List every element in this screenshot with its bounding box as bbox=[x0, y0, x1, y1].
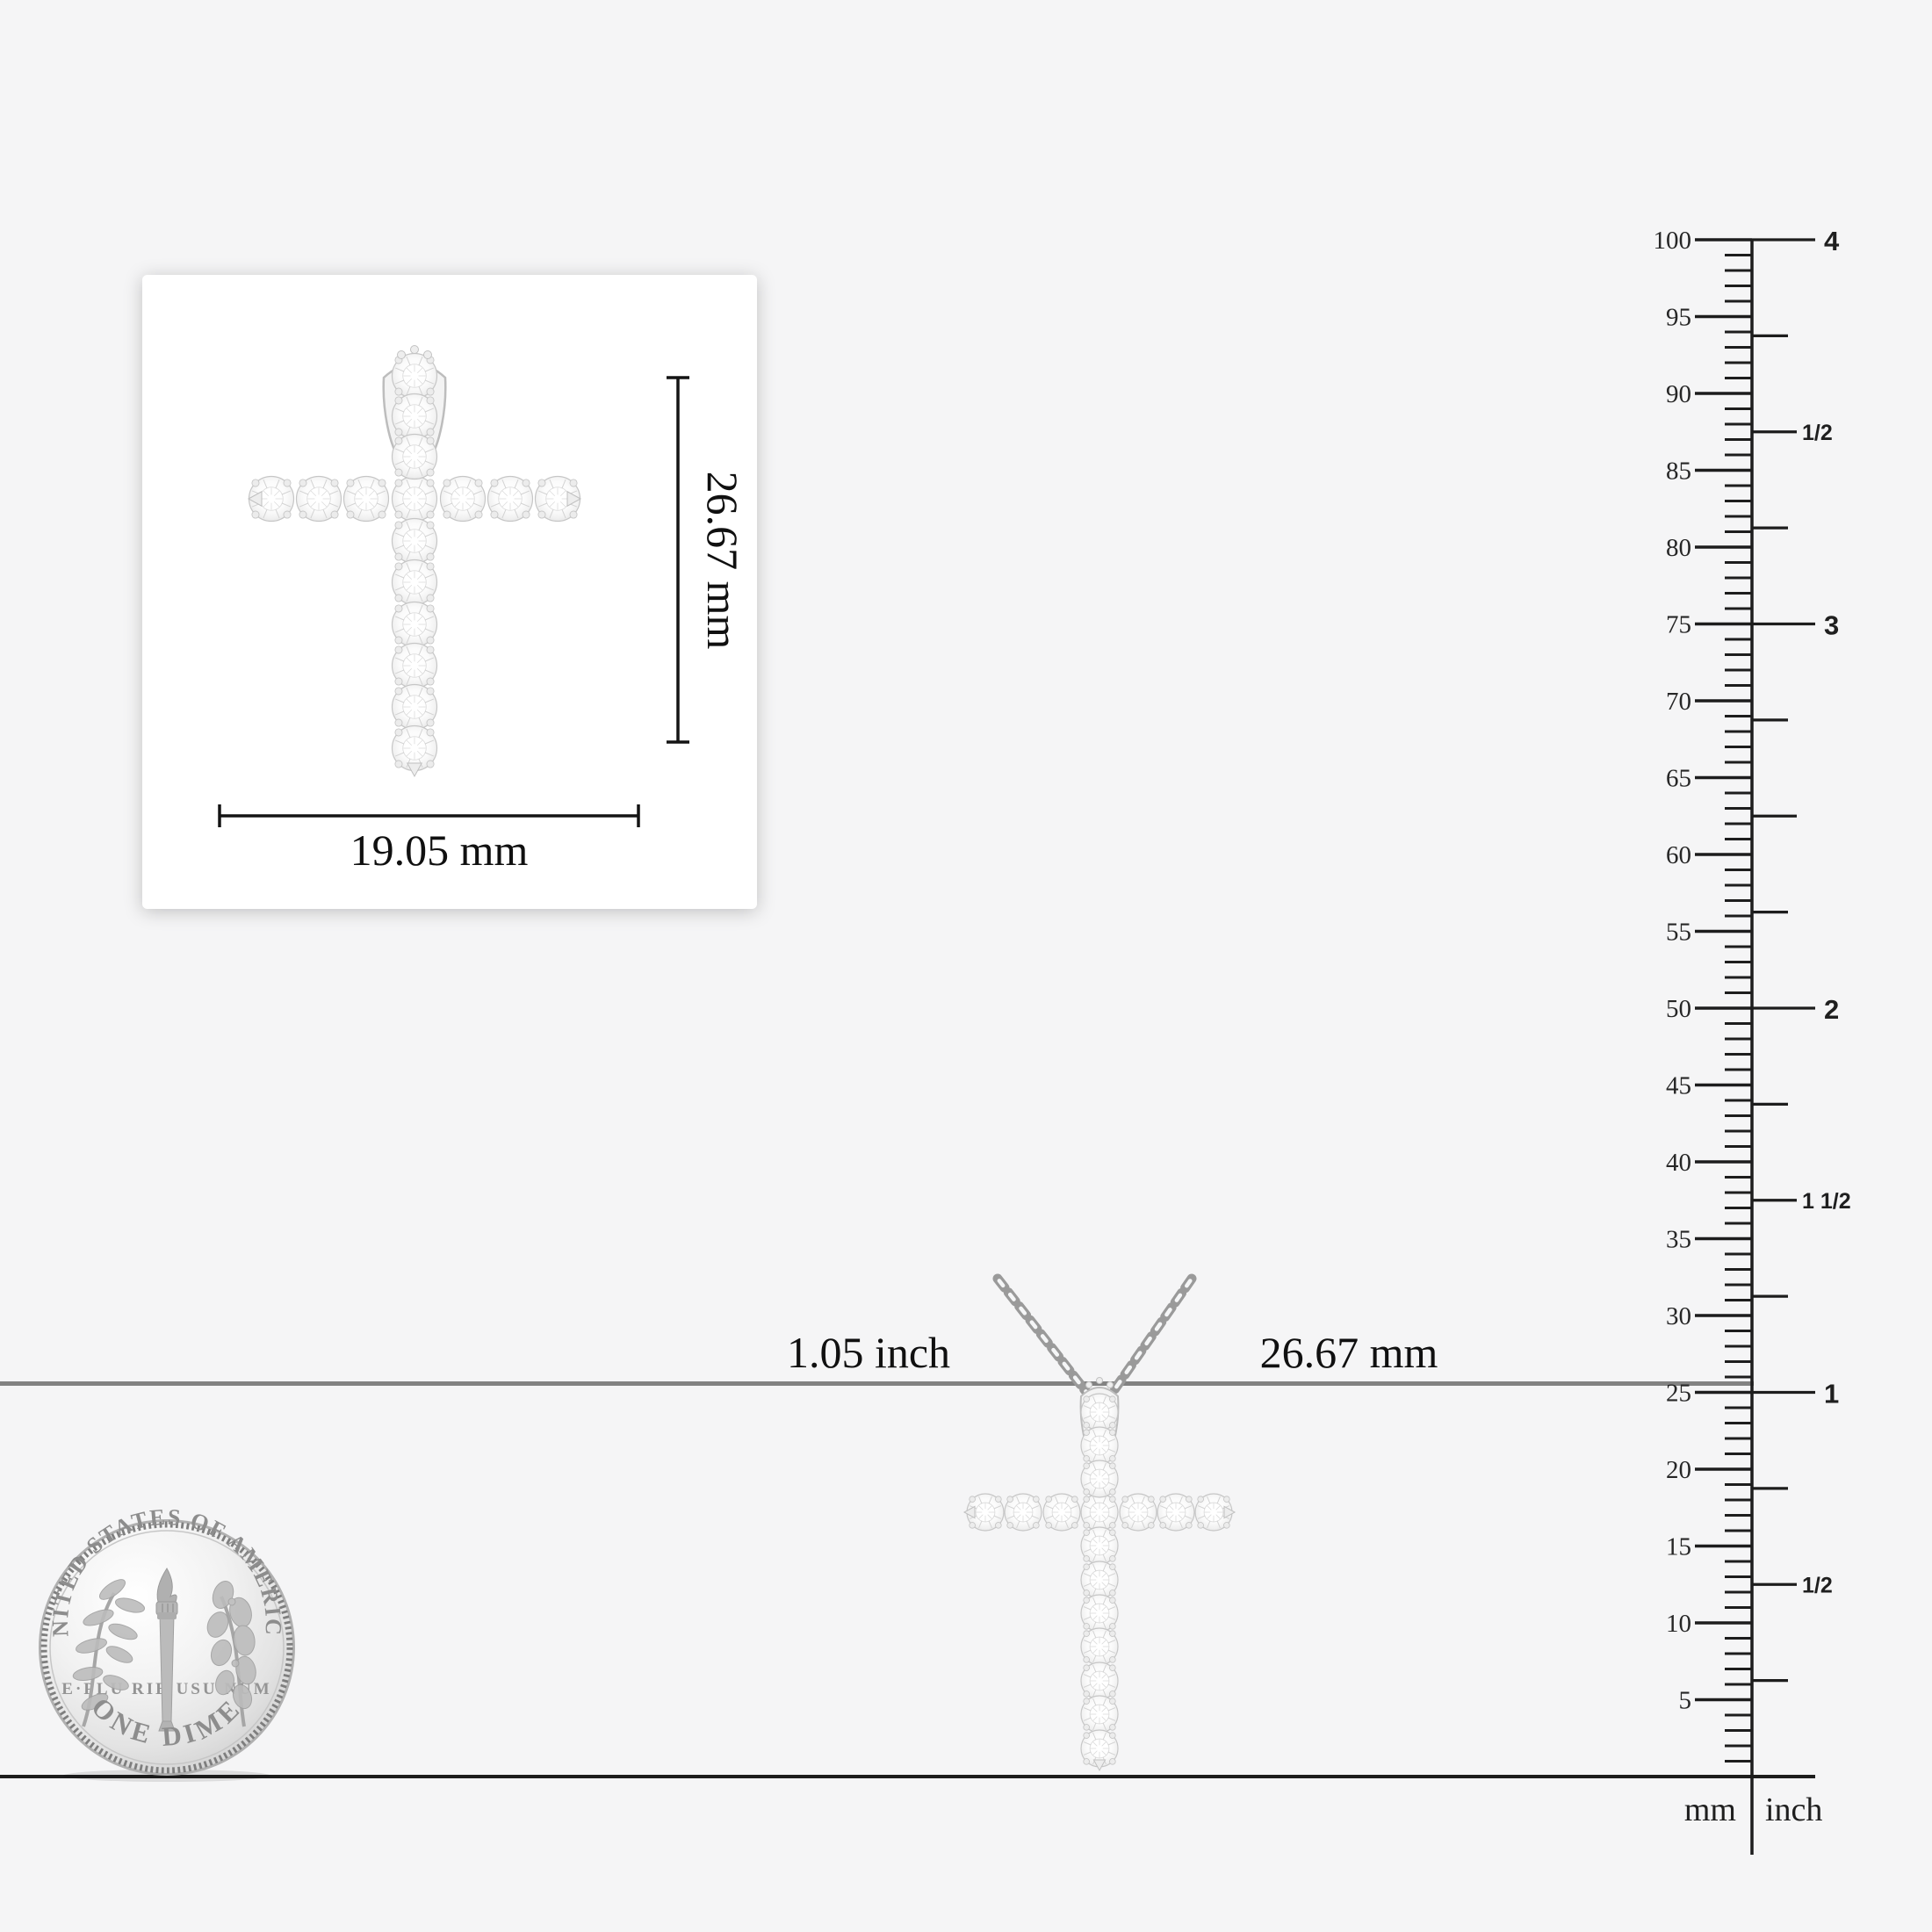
prong-dot bbox=[995, 1522, 1001, 1528]
prong-dot bbox=[1148, 1522, 1154, 1528]
card-height-label: 26.67 mm bbox=[698, 472, 747, 650]
prong-dot bbox=[1122, 1496, 1128, 1503]
prong-dot bbox=[1109, 1656, 1115, 1662]
prong-dot bbox=[427, 595, 434, 602]
prong-dot bbox=[395, 646, 402, 653]
prong-dot bbox=[331, 511, 338, 518]
prong-dot bbox=[523, 479, 530, 487]
prong-dot bbox=[443, 511, 451, 518]
prong-dot bbox=[1084, 1631, 1090, 1637]
prong-dot bbox=[538, 479, 545, 487]
prong-dot bbox=[1109, 1665, 1115, 1671]
ruler-inch-label: 4 bbox=[1824, 226, 1840, 256]
prong-dot bbox=[427, 688, 434, 695]
prong-dot bbox=[347, 479, 354, 487]
prong-dot bbox=[1084, 1463, 1090, 1469]
prong-dot bbox=[1186, 1522, 1192, 1528]
diamond-stone bbox=[393, 685, 437, 730]
prong-dot bbox=[427, 729, 434, 736]
prong-dot bbox=[1223, 1496, 1229, 1503]
ruler-mm-label: 50 bbox=[1666, 995, 1691, 1023]
diamond-stone bbox=[1081, 1628, 1118, 1665]
ruler-mm-label: 75 bbox=[1666, 611, 1691, 639]
prong-dot bbox=[1046, 1496, 1052, 1503]
prong-dot bbox=[1109, 1698, 1115, 1705]
diamond-stone bbox=[393, 602, 437, 647]
prong-dot bbox=[395, 729, 402, 736]
prong-dot bbox=[427, 678, 434, 685]
prong-dot bbox=[1109, 1489, 1115, 1495]
ruler-mm-label: 80 bbox=[1666, 534, 1691, 562]
prong-dot bbox=[1198, 1522, 1204, 1528]
ruler-mm-label: 95 bbox=[1666, 304, 1691, 332]
ruler-mm-label: 10 bbox=[1666, 1610, 1691, 1638]
ruler-mm-label: 45 bbox=[1666, 1072, 1691, 1100]
prong-dot bbox=[395, 563, 402, 570]
prong-dot bbox=[1084, 1422, 1090, 1428]
ruler-mm-label: 5 bbox=[1679, 1687, 1692, 1715]
prong-dot bbox=[395, 388, 402, 395]
size-guide-canvas: 1.05 inch 26.67 mm 26.67 mm 19.05 mm bbox=[0, 0, 1932, 1932]
diamond-stone bbox=[393, 644, 437, 688]
prong-dot bbox=[1046, 1522, 1052, 1528]
diamond-stone bbox=[393, 560, 437, 605]
prong-dot bbox=[1007, 1496, 1013, 1503]
diamond-stone bbox=[1081, 1460, 1118, 1497]
prong-dot bbox=[1109, 1496, 1115, 1503]
diamond-stone bbox=[1081, 1427, 1118, 1464]
prong-dot bbox=[1007, 1522, 1013, 1528]
ruler-mm-label: 100 bbox=[1654, 227, 1692, 255]
diamond-stone bbox=[1005, 1494, 1042, 1531]
prong-dot bbox=[395, 678, 402, 685]
prong-dot bbox=[970, 1496, 976, 1503]
prong-dot bbox=[427, 761, 434, 768]
prong-dot bbox=[427, 511, 434, 518]
prong-dot bbox=[331, 479, 338, 487]
prong-dot bbox=[1109, 1623, 1115, 1629]
pendant-dimension-card: 26.67 mm 19.05 mm bbox=[142, 275, 757, 909]
prong-dot bbox=[427, 522, 434, 529]
prong-dot bbox=[378, 479, 386, 487]
prong-dot bbox=[1148, 1496, 1154, 1503]
prong-dot bbox=[395, 637, 402, 644]
prong-dot bbox=[1109, 1422, 1115, 1428]
bail-prong-dot bbox=[424, 351, 432, 359]
diamond-stone bbox=[1081, 1561, 1118, 1598]
ruler-mm-unit-label: mm bbox=[1684, 1791, 1736, 1828]
prong-dot bbox=[1084, 1698, 1090, 1705]
prong-dot bbox=[1186, 1496, 1192, 1503]
prong-dot bbox=[395, 397, 402, 404]
ruler-mm-label: 25 bbox=[1666, 1380, 1691, 1408]
prong-dot bbox=[427, 437, 434, 444]
prong-dot bbox=[252, 511, 259, 518]
diamond-stone bbox=[1157, 1494, 1194, 1531]
ruler-mm-label: 65 bbox=[1666, 765, 1691, 793]
prong-dot bbox=[523, 511, 530, 518]
prong-dot bbox=[427, 479, 434, 487]
prong-dot bbox=[395, 688, 402, 695]
prong-dot bbox=[1084, 1690, 1090, 1697]
bail-prong-dot bbox=[398, 351, 406, 359]
prong-dot bbox=[1033, 1522, 1039, 1528]
ruler-mm-label: 85 bbox=[1666, 458, 1691, 486]
prong-dot bbox=[1109, 1430, 1115, 1436]
diamond-stone bbox=[393, 435, 437, 479]
prong-dot bbox=[1084, 1623, 1090, 1629]
diamond-stone bbox=[1081, 1595, 1118, 1632]
prong-dot bbox=[1084, 1590, 1090, 1596]
prong-dot bbox=[427, 388, 434, 395]
diamond-stone bbox=[1081, 1494, 1118, 1531]
ruler-mm-label: 40 bbox=[1666, 1149, 1691, 1177]
prong-dot bbox=[538, 511, 545, 518]
diamond-stone bbox=[1081, 1394, 1118, 1431]
prong-dot bbox=[427, 646, 434, 653]
prong-dot bbox=[570, 479, 577, 487]
prong-dot bbox=[1109, 1758, 1115, 1764]
prong-dot bbox=[1109, 1555, 1115, 1561]
ruler-inch-unit-label: inch bbox=[1765, 1791, 1822, 1828]
prong-dot bbox=[427, 637, 434, 644]
prong-dot bbox=[1160, 1522, 1166, 1528]
diamond-stone bbox=[1081, 1527, 1118, 1564]
prong-dot bbox=[1223, 1522, 1229, 1528]
prong-dot bbox=[1109, 1396, 1115, 1402]
prong-dot bbox=[1109, 1455, 1115, 1461]
prong-dot bbox=[443, 479, 451, 487]
comparison-line bbox=[0, 1381, 1754, 1386]
prong-dot bbox=[427, 605, 434, 612]
diamond-stone bbox=[1043, 1494, 1080, 1531]
prong-dot bbox=[252, 479, 259, 487]
prong-dot bbox=[1084, 1430, 1090, 1436]
prong-dot bbox=[1084, 1396, 1090, 1402]
prong-dot bbox=[1084, 1555, 1090, 1561]
prong-dot bbox=[491, 479, 498, 487]
prong-dot bbox=[1109, 1597, 1115, 1604]
prong-dot bbox=[284, 511, 291, 518]
prong-dot bbox=[491, 511, 498, 518]
diamond-stone bbox=[344, 477, 389, 522]
prong-dot bbox=[1109, 1564, 1115, 1570]
prong-dot bbox=[1109, 1724, 1115, 1730]
ruler-inch-label: 1/2 bbox=[1802, 421, 1833, 445]
prong-dot bbox=[1109, 1463, 1115, 1469]
prong-dot bbox=[1109, 1733, 1115, 1739]
prong-dot bbox=[1071, 1496, 1078, 1503]
prong-dot bbox=[1033, 1496, 1039, 1503]
prong-dot bbox=[995, 1496, 1001, 1503]
diamond-stone bbox=[1120, 1494, 1157, 1531]
diamond-stone bbox=[393, 519, 437, 564]
prong-dot bbox=[395, 469, 402, 476]
prong-dot bbox=[1084, 1496, 1090, 1503]
prong-dot bbox=[427, 563, 434, 570]
prong-dot bbox=[299, 479, 306, 487]
prong-dot bbox=[1109, 1530, 1115, 1536]
diamond-stone bbox=[393, 477, 437, 522]
prong-dot bbox=[299, 511, 306, 518]
prong-dot bbox=[427, 553, 434, 560]
prong-dot bbox=[1084, 1564, 1090, 1570]
bail-prong-dot bbox=[1107, 1382, 1114, 1388]
prong-dot bbox=[395, 479, 402, 487]
ruler-inch-label: 1 bbox=[1824, 1379, 1839, 1409]
torch-pole bbox=[160, 1615, 174, 1721]
prong-dot bbox=[1109, 1590, 1115, 1596]
prong-dot bbox=[427, 429, 434, 436]
prong-dot bbox=[395, 605, 402, 612]
ruler-mm-label: 30 bbox=[1666, 1302, 1691, 1330]
prong-dot bbox=[475, 511, 482, 518]
diamond-stone bbox=[488, 477, 533, 522]
prong-dot bbox=[1084, 1597, 1090, 1604]
prong-dot bbox=[395, 595, 402, 602]
card-background bbox=[142, 275, 757, 909]
ruler-mm-label: 20 bbox=[1666, 1456, 1691, 1484]
diamond-stone bbox=[441, 477, 486, 522]
prong-dot bbox=[1084, 1665, 1090, 1671]
prong-dot bbox=[1084, 1733, 1090, 1739]
bail-prong-dot bbox=[411, 346, 419, 354]
ruler-inch-label: 1 1/2 bbox=[1802, 1189, 1851, 1214]
prong-dot bbox=[395, 437, 402, 444]
card-width-label: 19.05 mm bbox=[350, 825, 529, 875]
product-size-guide: 1.05 inch 26.67 mm 26.67 mm 19.05 mm bbox=[0, 0, 1932, 1932]
prong-dot bbox=[395, 553, 402, 560]
prong-dot bbox=[1109, 1690, 1115, 1697]
baseline bbox=[0, 1775, 1815, 1778]
ruler-mm-label: 15 bbox=[1666, 1533, 1691, 1561]
prong-dot bbox=[1084, 1522, 1090, 1528]
prong-dot bbox=[570, 511, 577, 518]
bail-prong-dot bbox=[1086, 1382, 1092, 1388]
diamond-stone bbox=[393, 354, 437, 399]
ruler-mm-label: 55 bbox=[1666, 919, 1691, 947]
prong-dot bbox=[1109, 1631, 1115, 1637]
prong-dot bbox=[1084, 1489, 1090, 1495]
prong-dot bbox=[347, 511, 354, 518]
ruler-mm-label: 35 bbox=[1666, 1226, 1691, 1254]
ruler-mm-label: 70 bbox=[1666, 688, 1691, 716]
prong-dot bbox=[1109, 1522, 1115, 1528]
pendant-mm-label: 26.67 mm bbox=[1260, 1328, 1438, 1377]
torch-band bbox=[157, 1612, 177, 1619]
diamond-stone bbox=[393, 394, 437, 439]
prong-dot bbox=[1084, 1530, 1090, 1536]
ruler-inch-label: 1/2 bbox=[1802, 1573, 1833, 1597]
prong-dot bbox=[1084, 1455, 1090, 1461]
prong-dot bbox=[395, 719, 402, 726]
ruler-mm-label: 90 bbox=[1666, 380, 1691, 408]
prong-dot bbox=[378, 511, 386, 518]
diamond-stone bbox=[1081, 1662, 1118, 1699]
prong-dot bbox=[427, 397, 434, 404]
prong-dot bbox=[395, 429, 402, 436]
prong-dot bbox=[284, 479, 291, 487]
diamond-stone bbox=[1081, 1696, 1118, 1733]
diamond-stone bbox=[297, 477, 342, 522]
prong-dot bbox=[475, 479, 482, 487]
bail-prong-dot bbox=[1097, 1378, 1103, 1384]
prong-dot bbox=[1071, 1522, 1078, 1528]
prong-dot bbox=[427, 469, 434, 476]
prong-dot bbox=[1160, 1496, 1166, 1503]
prong-dot bbox=[395, 511, 402, 518]
prong-dot bbox=[1084, 1758, 1090, 1764]
prong-dot bbox=[1084, 1656, 1090, 1662]
prong-dot bbox=[970, 1522, 976, 1528]
pendant-inch-label: 1.05 inch bbox=[787, 1328, 950, 1377]
ruler-inch-label: 2 bbox=[1824, 994, 1839, 1025]
ruler-mm-label: 60 bbox=[1666, 841, 1691, 869]
prong-dot bbox=[1198, 1496, 1204, 1503]
ruler-inch-label: 3 bbox=[1824, 610, 1839, 641]
prong-dot bbox=[395, 522, 402, 529]
prong-dot bbox=[1084, 1724, 1090, 1730]
prong-dot bbox=[1122, 1522, 1128, 1528]
prong-dot bbox=[427, 719, 434, 726]
prong-dot bbox=[395, 761, 402, 768]
